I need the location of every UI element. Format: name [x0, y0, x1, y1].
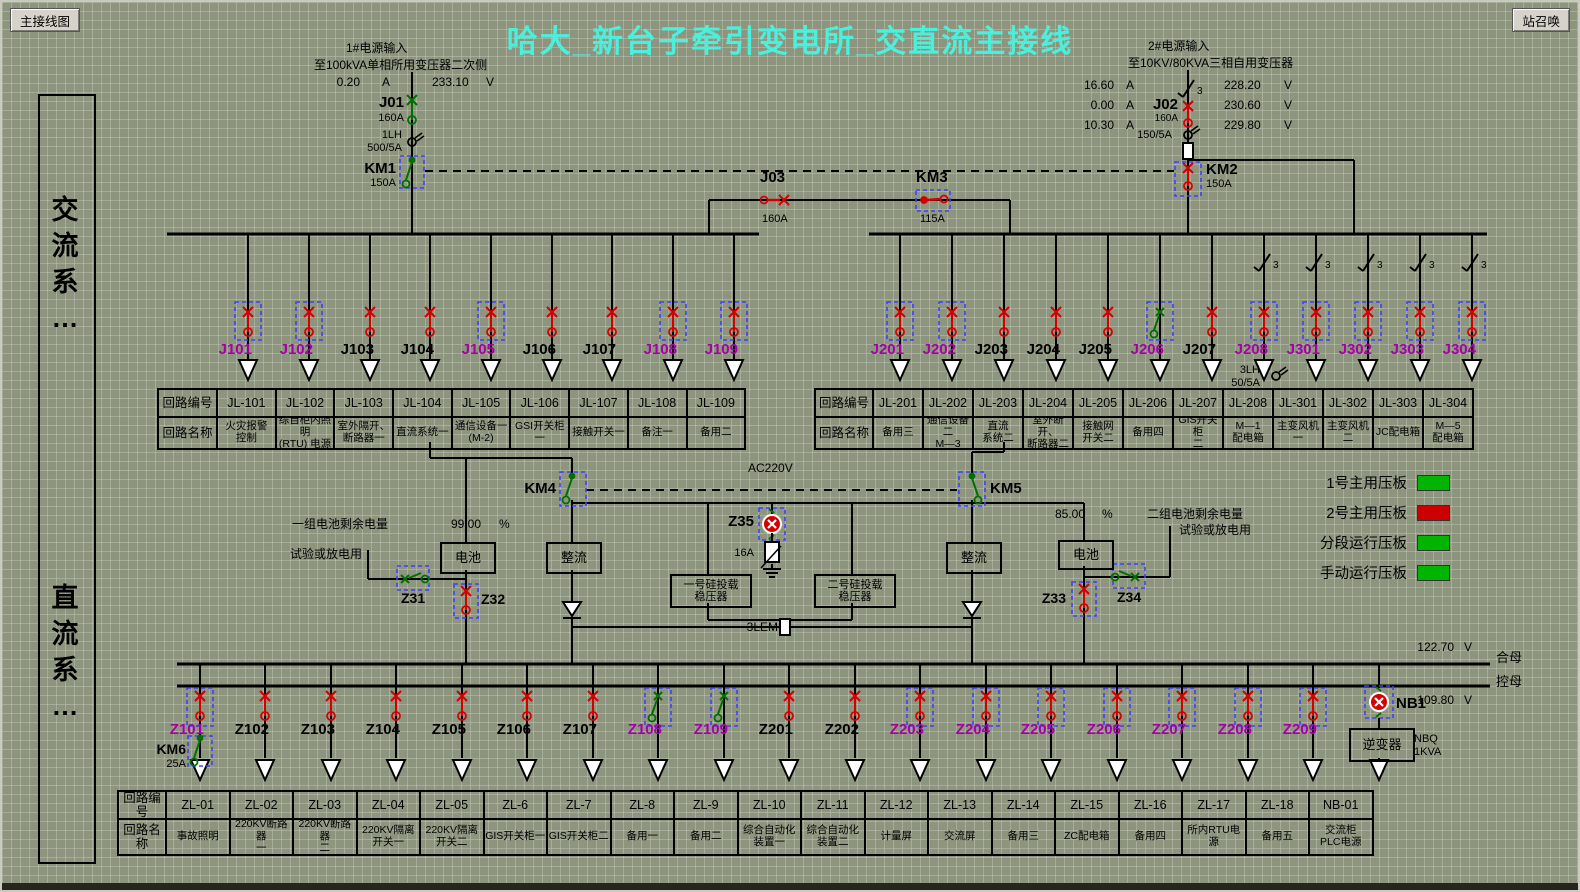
battery1-gauge_unit-label: % — [499, 518, 510, 532]
mid-rectifier-box: 整流 — [946, 542, 1002, 574]
source2-breaker-label: J02 — [1153, 97, 1178, 112]
feeder-label-Z104[interactable]: Z104 — [366, 722, 400, 737]
legend-item-label: 手动运行压板 — [1320, 562, 1407, 583]
table-cell: GIS开关柜一 — [485, 818, 547, 854]
feeder-label-Z205[interactable]: Z205 — [1021, 722, 1055, 737]
table-cell: JL-104 — [394, 390, 451, 416]
source2-volts-0-label: 228.20 — [1224, 79, 1261, 93]
table-cell: 综合自动化 装置一 — [739, 818, 801, 854]
table-cell: JL-108 — [629, 390, 686, 416]
source2-contactor-label: KM2 — [1206, 162, 1238, 177]
feeder-label-J303[interactable]: J303 — [1391, 342, 1424, 357]
dc_bus-v_low_unit-label: V — [1464, 694, 1472, 708]
feeder-J302[interactable]: 3 — [1355, 234, 1383, 380]
source1-line2-label: 至100kVA单相所用变压器二次侧 — [314, 59, 487, 73]
battery2-test_label-label: 试验或放电用 — [1179, 524, 1251, 538]
legend-item-label: 1号主用压板 — [1326, 472, 1407, 493]
feeder-label-J207[interactable]: J207 — [1183, 342, 1216, 357]
tie-j03-label: J03 — [760, 170, 785, 185]
mid-z35-label: Z35 — [728, 514, 754, 529]
dc_bus-v_high-label: 122.70 — [1417, 641, 1454, 655]
table-cell: NB-01 — [1310, 792, 1372, 818]
legend-item: 2号主用压板 — [1290, 502, 1450, 523]
legend-item: 手动运行压板 — [1290, 562, 1450, 583]
source1-amp_unit-label: A — [382, 76, 390, 90]
window-edge — [2, 883, 1578, 890]
table-cell: GIS开关柜二 — [548, 818, 610, 854]
feeder-label-J206[interactable]: J206 — [1131, 342, 1164, 357]
table-cell: GIS开关柜 二 — [1174, 416, 1222, 448]
stab-one-box: 一号硅投载 稳压器 — [670, 574, 752, 608]
table-cell: ZC配电箱 — [1056, 818, 1118, 854]
table-cell: 回路编号 — [816, 390, 872, 416]
source1-volt_unit-label: V — [486, 76, 494, 90]
ct-3LH2-icon — [1184, 126, 1200, 139]
table-cell: 主变风机一 — [1274, 416, 1322, 448]
table-cell: 备用一 — [612, 818, 674, 854]
table-cell: 室外断开、 断路器二 — [1024, 416, 1072, 448]
table-cell: ZL-16 — [1120, 792, 1182, 818]
feeder-label-J102[interactable]: J102 — [280, 342, 313, 357]
dc_bus-bus_high-label: 合母 — [1496, 651, 1522, 666]
table-cell: JL-301 — [1274, 390, 1322, 416]
table-cell: ZL-11 — [802, 792, 864, 818]
table-cell: JL-109 — [688, 390, 745, 416]
table-cell: 直流系统一 — [394, 416, 451, 448]
feeder-J109[interactable] — [721, 234, 747, 380]
table-cell: JL-202 — [924, 390, 972, 416]
km6-label-label: KM6 — [156, 742, 186, 756]
svg-text:3: 3 — [1377, 260, 1383, 271]
table-cell: ZL-14 — [993, 792, 1055, 818]
dc_bus-v_high_unit-label: V — [1464, 641, 1472, 655]
j208_ct-name-label: 3LH — [1240, 364, 1260, 377]
feeder-label-Z206[interactable]: Z206 — [1087, 722, 1121, 737]
table-cell: 通信设备二 M—3 — [924, 416, 972, 448]
table-cell: ZL-8 — [612, 792, 674, 818]
source1-breaker-label: J01 — [379, 95, 404, 110]
source2-amps-1-label: 0.00 — [1091, 99, 1114, 113]
table-cell: ZL-7 — [548, 792, 610, 818]
battery1-test_label-label: 试验或放电用 — [290, 548, 362, 562]
table-cell: 接触网 开关二 — [1074, 416, 1122, 448]
table-cell: 回路编号 — [119, 792, 165, 818]
table-cell: 备用三 — [993, 818, 1055, 854]
ac-table-right: 回路编号回路名称JL-201备用三JL-202通信设备二 M—3JL-203直流… — [814, 388, 1474, 450]
table-cell: 220KV断路器 二 — [294, 818, 356, 854]
table-cell: ZL-12 — [866, 792, 928, 818]
feeder-J203[interactable] — [995, 234, 1013, 380]
feeder-J202[interactable] — [939, 234, 965, 380]
battery2-gauge_unit-label: % — [1102, 508, 1113, 522]
battery1-box_label-box: 电池 — [440, 542, 496, 574]
table-cell: ZL-17 — [1183, 792, 1245, 818]
table-cell: JL-103 — [335, 390, 392, 416]
feeder-label-Z202[interactable]: Z202 — [825, 722, 859, 737]
feeder-J304[interactable]: 3 — [1459, 234, 1487, 380]
table-cell: ZL-15 — [1056, 792, 1118, 818]
feeder-J201[interactable] — [887, 234, 913, 380]
pressure-plate-indicator[interactable] — [1417, 475, 1450, 491]
feeder-label-Z106[interactable]: Z106 — [497, 722, 531, 737]
table-cell: JL-102 — [277, 390, 334, 416]
table-cell: ZL-03 — [294, 792, 356, 818]
feeder-label-J106[interactable]: J106 — [523, 342, 556, 357]
tie-j03_rating-label: 160A — [762, 213, 788, 226]
source2-circuit — [1188, 70, 1354, 234]
legend-item-label: 2号主用压板 — [1326, 502, 1407, 523]
table-cell: GSI开关柜一 — [511, 416, 568, 448]
source1-amp-label: 0.20 — [337, 76, 360, 90]
dc-table: 回路编号回路名称ZL-01事故照明ZL-02220KV断路器 一ZL-03220… — [117, 790, 1374, 856]
feeder-label-Z103[interactable]: Z103 — [301, 722, 335, 737]
nb1-inverter-box: 逆变器 — [1349, 728, 1415, 762]
mid-km4-label: KM4 — [524, 481, 556, 496]
table-cell: 综自柜内照明 (RTU) 电源 — [277, 416, 334, 448]
feeder-label-Z107[interactable]: Z107 — [563, 722, 597, 737]
source2-contactor_rating-label: 150A — [1206, 178, 1232, 191]
feeder-label-Z201[interactable]: Z201 — [759, 722, 793, 737]
table-cell: 备用二 — [688, 416, 745, 448]
lem-icon — [780, 619, 790, 635]
legend-item: 1号主用压板 — [1290, 472, 1450, 493]
table-cell: 综合自动化 装置二 — [802, 818, 864, 854]
feeder-J301[interactable]: 3 — [1303, 234, 1331, 380]
table-cell: JL-302 — [1324, 390, 1372, 416]
feeder-J206[interactable] — [1147, 234, 1173, 380]
source1-line1-label: 1#电源输入 — [346, 42, 407, 56]
source1-ct-label: 1LH — [382, 129, 402, 142]
feeder-J104[interactable] — [421, 234, 439, 380]
source1-volt-label: 233.10 — [432, 76, 469, 90]
table-cell: 备用五 — [1247, 818, 1309, 854]
svg-text:3: 3 — [1429, 260, 1435, 271]
svg-text:3: 3 — [1197, 86, 1203, 97]
source1-breaker_rating-label: 160A — [378, 112, 404, 125]
feeder-label-J301[interactable]: J301 — [1287, 342, 1320, 357]
feeder-J106[interactable] — [543, 234, 561, 380]
source2-breaker_rating-label: 160A — [1155, 113, 1178, 125]
table-cell: ZL-05 — [421, 792, 483, 818]
table-cell: 室外隔开、 断路器一 — [335, 416, 392, 448]
table-cell: JL-105 — [453, 390, 510, 416]
feeder-label-Z108[interactable]: Z108 — [628, 722, 662, 737]
source1-contactor_rating-label: 150A — [370, 177, 396, 190]
table-cell: 备用四 — [1124, 416, 1172, 448]
table-cell: 回路编号 — [159, 390, 216, 416]
stab-lem-label: 3LEM — [747, 621, 778, 635]
table-cell: 回路名称 — [119, 818, 165, 854]
feeder-label-Z204[interactable]: Z204 — [956, 722, 990, 737]
table-cell: 火灾报警 控制 — [218, 416, 275, 448]
feeder-label-J304[interactable]: J304 — [1443, 342, 1476, 357]
feeder-J105[interactable] — [478, 234, 504, 380]
fuse-icon — [1183, 143, 1193, 159]
source2-volts-2-label: 229.80 — [1224, 119, 1261, 133]
feeder-label-Z209[interactable]: Z209 — [1283, 722, 1317, 737]
source2-amps-0-label: 16.60 — [1084, 79, 1114, 93]
bus-tie — [709, 200, 1010, 234]
table-cell: 备注一 — [629, 416, 686, 448]
tie-km3-label: KM3 — [916, 170, 948, 185]
mid-ac220v-label: AC220V — [748, 462, 793, 476]
battery1-gauge_value-label: 99.00 — [451, 518, 481, 532]
volt-unit-label: V — [1284, 99, 1292, 113]
table-cell: JL-101 — [218, 390, 275, 416]
volt-unit-label: V — [1284, 79, 1292, 93]
feeder-J107[interactable] — [603, 234, 621, 380]
feeder-J303[interactable]: 3 — [1407, 234, 1435, 380]
table-cell: JL-205 — [1074, 390, 1122, 416]
feeder-label-J104[interactable]: J104 — [401, 342, 434, 357]
feeder-J204[interactable] — [1047, 234, 1065, 380]
nb1-r2-label: 1KVA — [1414, 746, 1441, 759]
pressure-plate-indicator[interactable] — [1417, 505, 1450, 521]
table-cell: JC配电箱 — [1374, 416, 1422, 448]
feeder-J108[interactable] — [660, 234, 686, 380]
amp-unit-label: A — [1126, 79, 1134, 93]
svg-text:3: 3 — [1481, 260, 1487, 271]
table-cell: 备用二 — [675, 818, 737, 854]
table-cell: JL-204 — [1024, 390, 1072, 416]
table-cell: ZL-10 — [739, 792, 801, 818]
table-cell: JL-206 — [1124, 390, 1172, 416]
ct-J208-icon — [1272, 367, 1288, 380]
table-cell: 直流 系统二 — [974, 416, 1022, 448]
feeder-label-Z105[interactable]: Z105 — [432, 722, 466, 737]
table-cell: 主变风机二 — [1324, 416, 1372, 448]
tie-km3_rating-label: 115A — [920, 213, 945, 226]
feeder-label-J208[interactable]: J208 — [1235, 342, 1268, 357]
battery1-sw_main-label: Z32 — [481, 592, 505, 606]
table-cell: JL-304 — [1424, 390, 1472, 416]
battery2-gauge_label-label: 二组电池剩余电量 — [1147, 508, 1243, 522]
table-cell: M—5 配电箱 — [1424, 416, 1472, 448]
amp-unit-label: A — [1126, 99, 1134, 113]
source1-contactor-label: KM1 — [364, 161, 396, 176]
table-cell: ZL-9 — [675, 792, 737, 818]
table-cell: 接触开关一 — [570, 416, 627, 448]
dc_bus-bus_low-label: 控母 — [1496, 675, 1522, 690]
table-cell: 通信设备一 (M-2) — [453, 416, 510, 448]
battery2-sw_test-label: Z34 — [1117, 590, 1141, 604]
feeder-label-J202[interactable]: J202 — [923, 342, 956, 357]
battery1-sw_test-label: Z31 — [401, 591, 425, 605]
table-cell: ZL-01 — [167, 792, 229, 818]
feeder-label-Z207[interactable]: Z207 — [1152, 722, 1186, 737]
table-cell: 220KV断路器 一 — [231, 818, 293, 854]
feeder-J102[interactable] — [296, 234, 322, 380]
battery2-sw_main-label: Z33 — [1042, 591, 1066, 605]
feeder-label-Z208[interactable]: Z208 — [1218, 722, 1252, 737]
table-cell: 备用四 — [1120, 818, 1182, 854]
mid-km5-label: KM5 — [990, 481, 1022, 496]
legend-item: 分段运行压板 — [1290, 532, 1450, 553]
table-cell: 交流柜 PLC电源 — [1310, 818, 1372, 854]
contactor-KM2[interactable] — [1175, 162, 1201, 196]
table-cell: 回路名称 — [159, 416, 216, 448]
table-cell: JL-207 — [1174, 390, 1222, 416]
nb1-label-label: NB1 — [1396, 696, 1426, 711]
table-cell: 事故照明 — [167, 818, 229, 854]
mid-rectifier-box: 整流 — [546, 542, 602, 574]
legend-item-label: 分段运行压板 — [1320, 532, 1407, 553]
feeder-label-J205[interactable]: J205 — [1079, 342, 1112, 357]
feeder-J208[interactable]: 3 — [1251, 234, 1279, 380]
table-cell: JL-106 — [511, 390, 568, 416]
diode-icon — [563, 602, 981, 618]
table-cell: JL-208 — [1224, 390, 1272, 416]
table-cell: ZL-04 — [358, 792, 420, 818]
pressure-plate-indicator[interactable] — [1417, 535, 1450, 551]
table-cell: 回路名称 — [816, 416, 872, 448]
table-cell: M—1 配电箱 — [1224, 416, 1272, 448]
source2-line1-label: 2#电源输入 — [1148, 40, 1209, 54]
volt-unit-label: V — [1284, 119, 1292, 133]
table-cell: 交流屏 — [929, 818, 991, 854]
table-cell: JL-303 — [1374, 390, 1422, 416]
stab-two-box: 二号硅投载 稳压器 — [814, 574, 896, 608]
feeder-label-J105[interactable]: J105 — [462, 342, 495, 357]
source2-volts-1-label: 230.60 — [1224, 99, 1261, 113]
feeder-J205[interactable] — [1099, 234, 1117, 380]
scada-screen: 主接线图 站召唤 哈大_新台子牵引变电所_交直流主接线 交 流 系 … 直 流 … — [0, 0, 1580, 892]
feeder-label-Z109[interactable]: Z109 — [694, 722, 728, 737]
table-cell: JL-107 — [570, 390, 627, 416]
battery2-box_label-box: 电池 — [1058, 540, 1114, 570]
table-cell: 所内RTU电源 — [1183, 818, 1245, 854]
table-cell: 220KV隔离 开关二 — [421, 818, 483, 854]
feeder-label-J108[interactable]: J108 — [644, 342, 677, 357]
pressure-plate-indicator[interactable] — [1417, 565, 1450, 581]
source2-line2-label: 至10KV/80KVA三相自用变压器 — [1128, 57, 1293, 71]
km6-rating-label: 25A — [166, 758, 186, 771]
battery2-gauge_value-label: 85.00 — [1055, 508, 1085, 522]
table-cell: 备用三 — [874, 416, 922, 448]
breaker-J01[interactable] — [407, 95, 417, 124]
feeder-J101[interactable] — [235, 234, 261, 380]
table-cell: ZL-13 — [929, 792, 991, 818]
table-cell: JL-203 — [974, 390, 1022, 416]
feeder-J207[interactable] — [1203, 234, 1221, 380]
source2-amps-2-label: 10.30 — [1084, 119, 1114, 133]
feeder-label-Z203[interactable]: Z203 — [890, 722, 924, 737]
svg-text:3: 3 — [1325, 260, 1331, 271]
feeder-NB1[interactable] — [1365, 664, 1393, 780]
feeder-label-J107[interactable]: J107 — [583, 342, 616, 357]
feeder-label-J101[interactable]: J101 — [219, 342, 252, 357]
feeder-label-J201[interactable]: J201 — [871, 342, 904, 357]
feeder-label-Z101[interactable]: Z101 — [170, 722, 204, 737]
amp-unit-label: A — [1126, 119, 1134, 133]
feeder-label-Z102[interactable]: Z102 — [235, 722, 269, 737]
battery1-gauge_label-label: 一组电池剩余电量 — [292, 518, 388, 532]
nb1-r1-label: NBQ — [1414, 733, 1438, 746]
svg-text:3: 3 — [1273, 260, 1279, 271]
feeder-J103[interactable] — [361, 234, 379, 380]
table-cell: JL-201 — [874, 390, 922, 416]
feeder-label-J302[interactable]: J302 — [1339, 342, 1372, 357]
source2-ct_ratio-label: 150/5A — [1137, 129, 1172, 142]
source1-ct_ratio-label: 500/5A — [367, 142, 402, 155]
feeder-label-J103[interactable]: J103 — [341, 342, 374, 357]
table-cell: 220KV隔离 开关一 — [358, 818, 420, 854]
feeder-label-J203[interactable]: J203 — [975, 342, 1008, 357]
feeder-label-J204[interactable]: J204 — [1027, 342, 1060, 357]
feeder-label-J109[interactable]: J109 — [705, 342, 738, 357]
table-cell: ZL-6 — [485, 792, 547, 818]
ac-table-left: 回路编号回路名称JL-101火灾报警 控制JL-102综自柜内照明 (RTU) … — [157, 388, 746, 450]
mid-z35_rating-label: 16A — [734, 547, 754, 560]
table-cell: 计量屏 — [866, 818, 928, 854]
table-cell: ZL-02 — [231, 792, 293, 818]
table-cell: ZL-18 — [1247, 792, 1309, 818]
disconnect-J02-icon: 3 — [1178, 80, 1203, 97]
ct-1LH-icon — [408, 133, 424, 146]
